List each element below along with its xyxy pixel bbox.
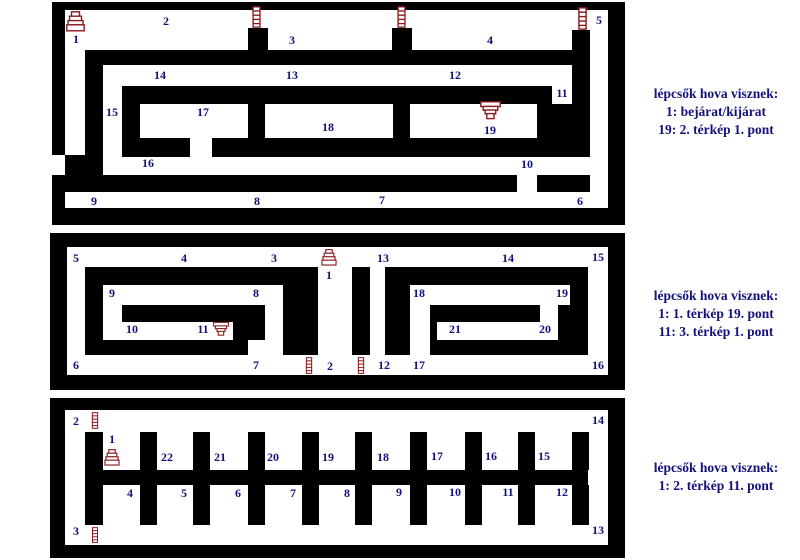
point-label: 1 [326, 269, 332, 281]
point-label: 19 [322, 451, 334, 463]
maze-wall [302, 485, 319, 525]
maze-wall [248, 432, 265, 470]
maze-wall [430, 322, 437, 340]
maze-wall [248, 104, 265, 138]
point-label: 8 [344, 487, 350, 499]
point-label: 6 [577, 195, 583, 207]
maze-wall [302, 432, 319, 470]
point-label: 10 [521, 158, 533, 170]
point-label: 14 [502, 252, 514, 264]
maze-wall [430, 340, 570, 355]
maze-wall [352, 267, 370, 355]
ladder-icon [305, 357, 313, 374]
point-label: 7 [253, 359, 259, 371]
maze-wall [302, 267, 318, 355]
maze-wall [140, 432, 157, 470]
point-label: 6 [73, 359, 79, 371]
point-label: 21 [449, 323, 461, 335]
maze-wall [393, 104, 410, 138]
maze-wall [537, 175, 590, 192]
point-label: 9 [396, 486, 402, 498]
point-label: 18 [322, 121, 334, 133]
point-label: 17 [431, 450, 443, 462]
point-label: 2 [327, 360, 333, 372]
legend-line: 1: 2. térkép 11. pont [654, 477, 779, 495]
point-label: 10 [449, 486, 461, 498]
maze-wall [465, 432, 482, 470]
ladder-icon [252, 6, 261, 28]
ladder-icon [397, 6, 406, 28]
point-label: 7 [379, 194, 385, 206]
stairs-up-icon [103, 449, 121, 466]
point-label: 7 [290, 487, 296, 499]
maze-wall [140, 485, 157, 525]
ladder-icon [91, 527, 99, 543]
maze-wall [558, 305, 570, 340]
maze-wall [430, 305, 540, 322]
ladder-icon [91, 412, 99, 429]
point-label: 4 [181, 252, 187, 264]
maze-wall [355, 485, 372, 525]
legend-map-2: lépcsők hova visznek: 1: 1. térkép 19. p… [654, 287, 779, 341]
maze-wall [410, 485, 427, 525]
point-label: 16 [142, 157, 154, 169]
point-label: 12 [378, 359, 390, 371]
maze-wall [122, 305, 265, 322]
legend-map-1: lépcsők hova visznek: 1: bejárat/kijárat… [654, 85, 779, 139]
maze-passage-notch [52, 155, 65, 175]
point-label: 3 [289, 34, 295, 46]
point-label: 4 [127, 487, 133, 499]
point-label: 2 [73, 415, 79, 427]
maze-wall [193, 432, 210, 470]
maze-wall [385, 285, 410, 355]
point-label: 5 [181, 487, 187, 499]
point-label: 6 [235, 487, 241, 499]
maze-wall [518, 432, 535, 470]
maze-wall [193, 485, 210, 525]
legend-line: 19: 2. térkép 1. pont [654, 121, 779, 139]
maze-wall [122, 138, 190, 157]
maze-wall [85, 267, 283, 285]
maze-wall [283, 267, 302, 355]
point-label: 16 [592, 359, 604, 371]
point-label: 17 [197, 106, 209, 118]
maze-wall [355, 432, 372, 470]
legend-line: lépcsők hova visznek: [654, 85, 779, 103]
stairs-down-icon [480, 101, 501, 120]
point-label: 15 [592, 251, 604, 263]
point-label: 1 [73, 33, 79, 45]
point-label: 11 [502, 486, 513, 498]
maze-wall [65, 155, 103, 192]
point-label: 9 [109, 287, 115, 299]
point-label: 10 [126, 323, 138, 335]
point-label: 14 [154, 69, 166, 81]
point-label: 12 [449, 69, 461, 81]
point-label: 13 [592, 524, 604, 536]
point-label: 17 [413, 359, 425, 371]
point-label: 15 [538, 450, 550, 462]
maze-wall [233, 322, 265, 340]
maze-wall [392, 28, 412, 50]
legend-line: 1: bejárat/kijárat [654, 103, 779, 121]
point-label: 12 [556, 486, 568, 498]
point-label: 14 [592, 414, 604, 426]
point-label: 8 [253, 287, 259, 299]
point-label: 18 [377, 451, 389, 463]
maze-wall [572, 432, 589, 470]
maze-wall [248, 28, 268, 50]
maze-wall [85, 470, 588, 485]
point-label: 9 [91, 195, 97, 207]
maze-wall [102, 175, 517, 192]
point-label: 3 [73, 525, 79, 537]
maze-wall [85, 340, 248, 355]
ladder-icon [578, 7, 587, 30]
maze-wall [465, 485, 482, 525]
maze-wall [410, 432, 427, 470]
point-label: 3 [271, 252, 277, 264]
stairs-down-icon [213, 321, 229, 337]
point-label: 2 [163, 15, 169, 27]
point-label: 13 [286, 69, 298, 81]
legend-line: lépcsők hova visznek: [654, 459, 779, 477]
point-label: 16 [485, 450, 497, 462]
point-label: 1 [109, 433, 115, 445]
point-label: 4 [487, 34, 493, 46]
maze-wall [85, 50, 572, 65]
point-label: 22 [161, 451, 173, 463]
maze-wall [85, 50, 103, 157]
point-label: 20 [539, 323, 551, 335]
point-label: 8 [254, 195, 260, 207]
legend-line: 1: 1. térkép 19. pont [654, 305, 779, 323]
maze-wall [572, 485, 589, 525]
point-label: 11 [197, 323, 208, 335]
point-label: 5 [73, 252, 79, 264]
maze-wall [385, 267, 588, 285]
maze-wall [212, 138, 572, 157]
maze-wall [518, 485, 535, 525]
maze-wall [122, 104, 140, 138]
legend-line: lépcsők hova visznek: [654, 287, 779, 305]
point-label: 19 [556, 287, 568, 299]
point-label: 11 [556, 87, 567, 99]
point-label: 18 [413, 287, 425, 299]
point-label: 19 [484, 124, 496, 136]
point-label: 21 [214, 451, 226, 463]
legend-line: 11: 3. térkép 1. pont [654, 323, 779, 341]
stairs-up-icon [66, 11, 85, 32]
maze-wall [570, 285, 588, 355]
point-label: 5 [596, 14, 602, 26]
point-label: 15 [106, 106, 118, 118]
maze-maps-page: 12345678910111213141516171819 5431131415… [0, 0, 800, 560]
ladder-icon [357, 357, 365, 374]
stairs-up-icon [320, 249, 338, 266]
maze-wall [248, 485, 265, 525]
maze-wall [572, 30, 590, 157]
point-label: 13 [377, 252, 389, 264]
legend-map-3: lépcsők hova visznek: 1: 2. térkép 11. p… [654, 459, 779, 495]
point-label: 20 [267, 451, 279, 463]
